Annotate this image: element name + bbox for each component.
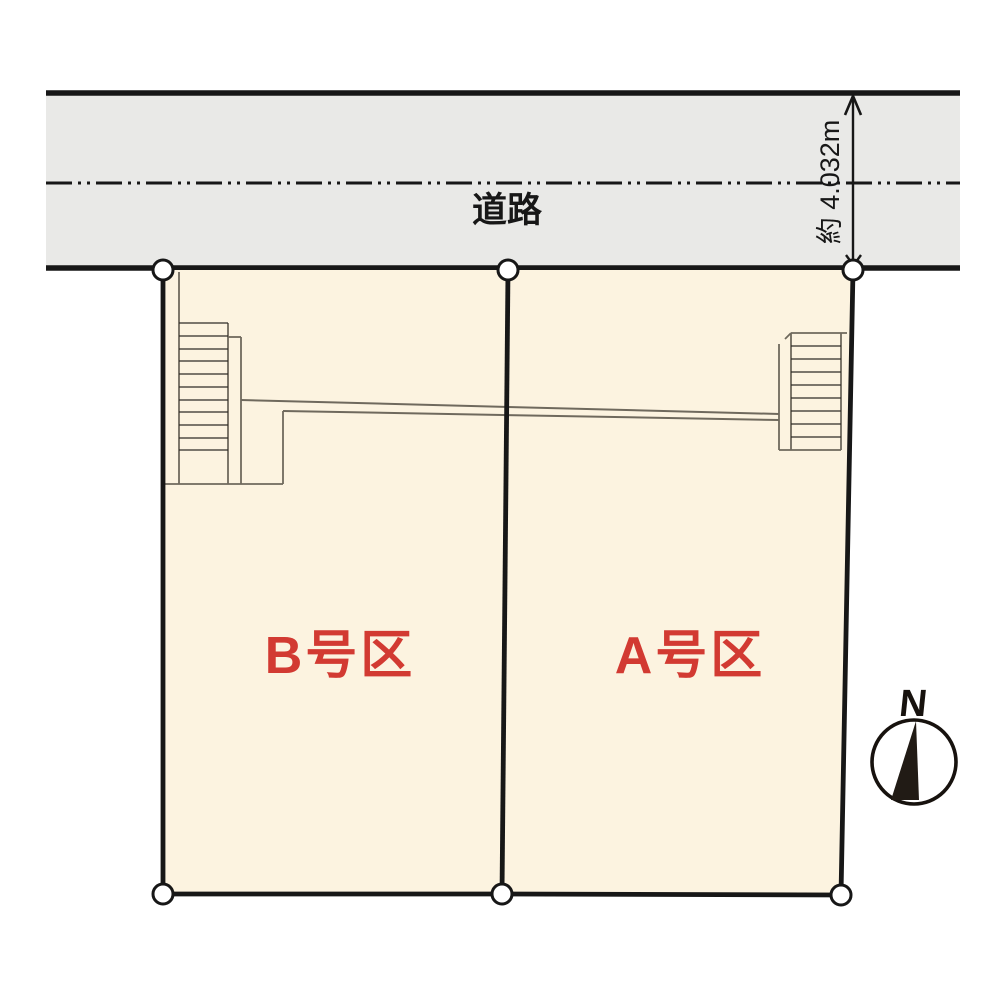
boundary-marker-top-middle	[498, 260, 518, 280]
plot-b-area	[163, 270, 508, 894]
plot-map-canvas: 道路	[0, 0, 1000, 1000]
road-label: 道路	[472, 191, 543, 230]
plot-a-area	[502, 270, 853, 895]
boundary-marker-top-left	[153, 260, 173, 280]
boundary-marker-bottom-left	[153, 884, 173, 904]
plot-map-svg: 道路	[0, 0, 1000, 1000]
north-label: N	[897, 683, 929, 725]
dimension-label: 約 4.032m	[815, 120, 845, 245]
boundary-marker-bottom-middle	[492, 884, 512, 904]
plot-a-label: A号区	[615, 627, 766, 685]
north-compass: N	[872, 683, 956, 804]
boundary-marker-bottom-right	[831, 885, 851, 905]
dimension-road-width: 約 4.032m	[815, 96, 861, 266]
plot-b-label: B号区	[265, 627, 416, 685]
boundary-marker-top-right	[843, 260, 863, 280]
